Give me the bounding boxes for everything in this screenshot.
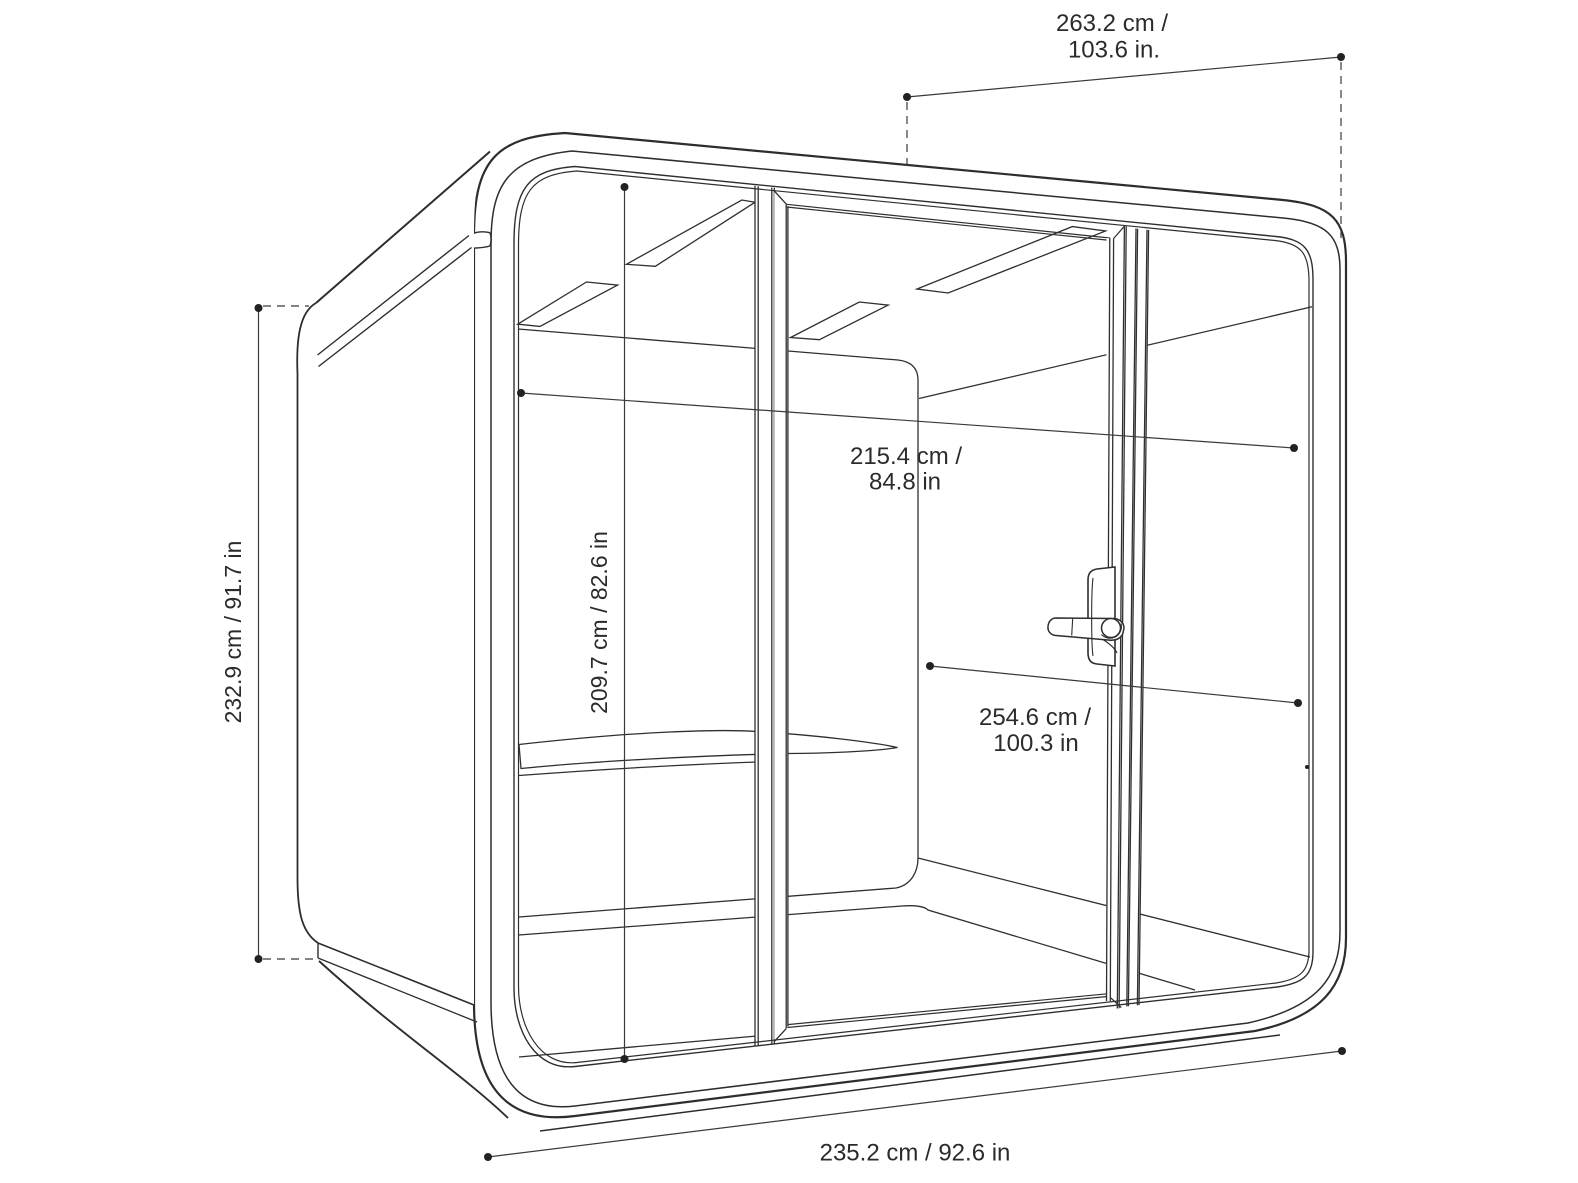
svg-text:254.6 cm /: 254.6 cm / xyxy=(979,704,1091,731)
svg-text:235.2 cm / 92.6 in: 235.2 cm / 92.6 in xyxy=(820,1140,1011,1167)
svg-text:103.6 in.: 103.6 in. xyxy=(1068,37,1160,64)
svg-text:263.2 cm /: 263.2 cm / xyxy=(1056,10,1168,37)
svg-text:232.9 cm / 91.7 in: 232.9 cm / 91.7 in xyxy=(220,541,246,724)
svg-text:215.4 cm /: 215.4 cm / xyxy=(850,443,962,470)
svg-text:100.3 in: 100.3 in xyxy=(993,730,1078,757)
svg-text:209.7 cm / 82.6 in: 209.7 cm / 82.6 in xyxy=(586,531,612,714)
svg-text:84.8 in: 84.8 in xyxy=(869,469,941,496)
